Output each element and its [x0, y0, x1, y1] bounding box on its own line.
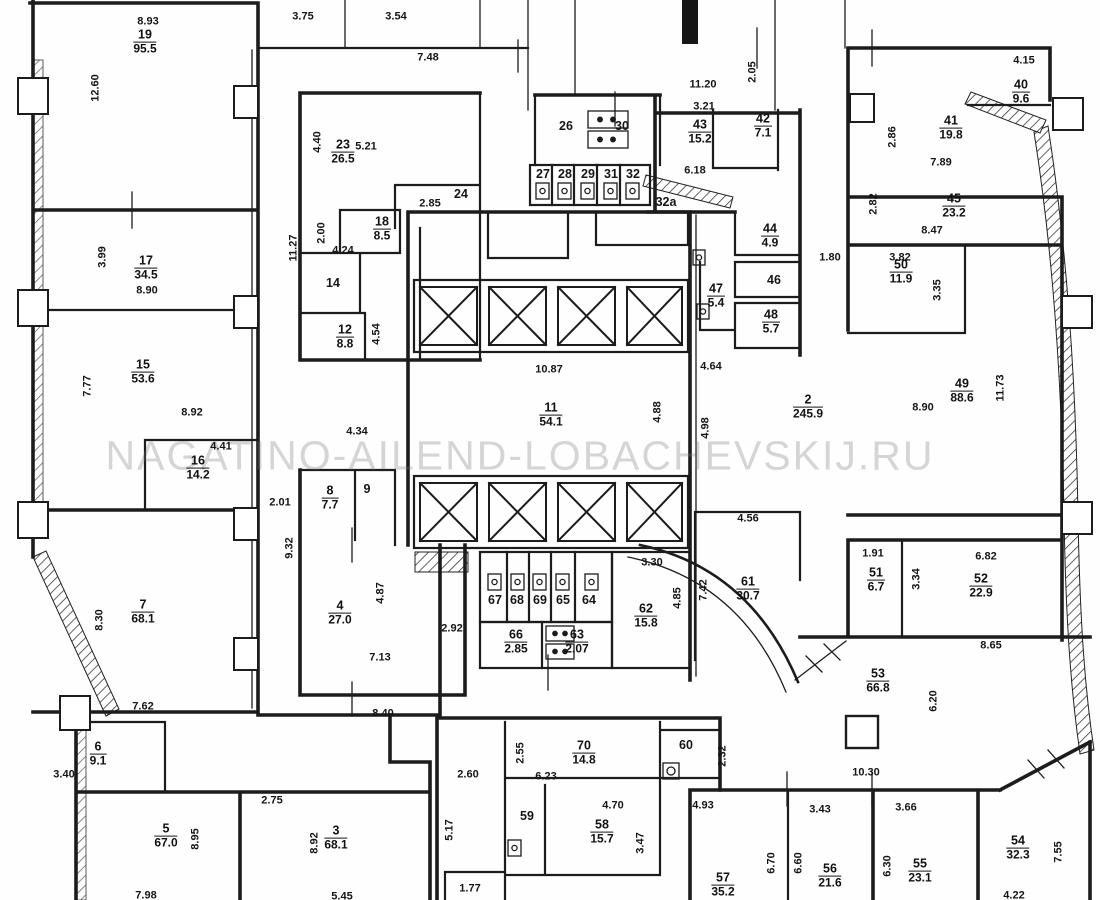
- room-label-5: 567.0: [154, 822, 177, 851]
- dimension-label: 6.82: [975, 552, 996, 563]
- dimension-label: 8.30: [95, 609, 106, 630]
- dimension-label: 4.56: [737, 514, 758, 525]
- room-number: 47: [707, 282, 725, 297]
- dimension-label: 5.21: [355, 142, 376, 153]
- dimension-label: 12.60: [91, 74, 102, 102]
- room-label-41: 4119.8: [939, 114, 962, 143]
- dimension-label: 8.90: [136, 286, 157, 297]
- room-label-47: 475.4: [707, 282, 725, 311]
- dimension-label: 4.64: [700, 362, 721, 373]
- room-number-label: 26: [559, 120, 573, 133]
- dimension-label: 2.75: [261, 796, 282, 807]
- dimension-label: 5.17: [445, 819, 456, 840]
- dimension-label: 5.45: [331, 892, 352, 900]
- room-number-label: 46: [767, 274, 781, 287]
- room-area: 245.9: [793, 408, 823, 422]
- room-number-label: 68: [510, 594, 524, 607]
- room-area: 2.85: [504, 643, 527, 657]
- dimension-label: 8.40: [372, 709, 393, 720]
- room-area: 27.0: [328, 614, 351, 628]
- room-number-label: 64: [582, 594, 596, 607]
- dimension-label: 4.41: [210, 442, 231, 453]
- room-number: 40: [1012, 78, 1030, 93]
- dimension-label: 4.34: [346, 427, 367, 438]
- dimension-label: 3.99: [98, 246, 109, 267]
- room-number: 12: [336, 323, 354, 338]
- dimension-label: 4.15: [1013, 56, 1034, 67]
- room-label-49: 4988.6: [950, 377, 973, 406]
- dimension-label: 7.98: [135, 891, 156, 900]
- room-number-label: 67: [488, 594, 502, 607]
- room-area: 54.1: [539, 416, 562, 430]
- room-area: 7.1: [754, 127, 772, 141]
- dimension-label: 10.87: [535, 365, 563, 376]
- dimension-label: 11.73: [996, 375, 1007, 402]
- room-number: 52: [969, 572, 992, 587]
- room-number-label: 32a: [656, 196, 677, 209]
- room-number: 18: [373, 215, 391, 230]
- dimension-label: 2.01: [269, 498, 290, 509]
- room-label-40: 409.6: [1012, 78, 1030, 107]
- dimension-label: 6.18: [684, 166, 705, 177]
- dimension-label: 3.35: [933, 279, 944, 300]
- room-number: 61: [736, 575, 759, 590]
- dimension-label: 11.20: [690, 80, 717, 91]
- dimension-label: 4.22: [1003, 891, 1024, 900]
- room-number: 54: [1006, 834, 1029, 849]
- room-number: 16: [186, 454, 209, 469]
- room-area: 53.6: [131, 373, 154, 387]
- room-label-63: 632.07: [565, 628, 588, 657]
- dimension-label: 6.70: [767, 852, 778, 873]
- room-area: 11.9: [890, 273, 913, 287]
- dimension-label: 8.93: [137, 17, 158, 28]
- dimension-label: 1.77: [459, 884, 480, 895]
- dimension-label: 3.54: [385, 12, 406, 23]
- dimension-label: 4.93: [692, 801, 713, 812]
- dimension-label: 7.13: [369, 653, 390, 664]
- room-number: 57: [711, 871, 734, 886]
- room-label-18: 188.5: [373, 215, 391, 244]
- room-number-label: 69: [533, 594, 547, 607]
- dimension-label: 9.32: [285, 537, 296, 558]
- room-number: 62: [634, 602, 657, 617]
- room-label-48: 485.7: [762, 308, 780, 337]
- dimension-label: 2.32: [718, 745, 729, 766]
- room-number-label: 65: [556, 594, 570, 607]
- room-label-8: 87.7: [322, 484, 339, 513]
- room-number: 7: [131, 598, 154, 613]
- dimension-label: 4.98: [701, 417, 712, 438]
- room-number: 66: [504, 628, 527, 643]
- room-label-57: 5735.2: [711, 871, 734, 900]
- dimension-label: 4.70: [602, 801, 623, 812]
- room-area: 6.7: [867, 581, 885, 595]
- dimension-label: 3.34: [912, 568, 923, 589]
- dimension-label: 2.05: [748, 61, 759, 82]
- dimension-label: 8.47: [921, 226, 942, 237]
- dimension-label: 3.47: [636, 832, 647, 853]
- room-label-54: 5432.3: [1006, 834, 1029, 863]
- room-area: 14.2: [186, 469, 209, 483]
- room-area: 23.2: [942, 207, 965, 221]
- room-area: 30.7: [736, 590, 759, 604]
- dimension-label: 6.30: [883, 855, 894, 876]
- room-number: 45: [942, 192, 965, 207]
- room-number: 58: [590, 818, 613, 833]
- room-number: 4: [328, 599, 351, 614]
- room-label-2: 2245.9: [793, 393, 823, 422]
- room-area: 5.4: [707, 297, 725, 311]
- room-label-11: 1154.1: [539, 401, 562, 430]
- room-area: 8.8: [336, 338, 354, 352]
- room-area: 68.1: [324, 839, 347, 853]
- dimension-label: 2.85: [419, 199, 440, 210]
- room-label-7: 768.1: [131, 598, 154, 627]
- dimension-label: 2.55: [516, 742, 527, 763]
- room-number: 50: [890, 258, 913, 273]
- room-number: 70: [572, 739, 595, 754]
- room-label-44: 444.9: [761, 222, 779, 251]
- room-number: 44: [761, 222, 779, 237]
- dimension-label: 4.40: [313, 131, 324, 152]
- room-area: 15.2: [688, 133, 711, 147]
- room-area: 4.9: [761, 237, 779, 251]
- room-number: 15: [131, 358, 154, 373]
- room-area: 21.6: [818, 877, 841, 891]
- room-area: 32.3: [1006, 849, 1029, 863]
- dimension-label: 2.00: [317, 222, 328, 243]
- dimension-label: 1.91: [862, 549, 883, 560]
- room-label-70: 7014.8: [572, 739, 595, 768]
- dimension-label: 7.77: [83, 375, 94, 396]
- room-area: 34.5: [134, 269, 157, 283]
- dimension-label: 2.60: [457, 770, 478, 781]
- room-label-53: 5366.8: [866, 667, 889, 696]
- room-area: 35.2: [711, 886, 734, 900]
- room-number: 51: [867, 566, 885, 581]
- room-label-61: 6130.7: [736, 575, 759, 604]
- room-number: 17: [134, 254, 157, 269]
- room-label-56: 5621.6: [818, 862, 841, 891]
- dimension-label: 4.88: [653, 401, 664, 422]
- dimension-label: 2.82: [869, 193, 880, 214]
- room-number-label: 9: [364, 483, 371, 496]
- room-area: 23.1: [908, 872, 931, 886]
- room-number-label: 32: [626, 168, 640, 181]
- room-label-17: 1734.5: [134, 254, 157, 283]
- room-area: 5.7: [762, 323, 780, 337]
- room-number: 56: [818, 862, 841, 877]
- dimension-label: 7.55: [1054, 841, 1065, 862]
- dimension-label: 4.87: [376, 582, 387, 603]
- room-number-label: 28: [558, 168, 572, 181]
- dimension-label: 4.54: [372, 323, 383, 344]
- room-label-66: 662.85: [504, 628, 527, 657]
- room-area: 8.5: [373, 230, 391, 244]
- room-label-15: 1553.6: [131, 358, 154, 387]
- dimension-label: 4.24: [332, 246, 353, 257]
- room-label-55: 5523.1: [908, 857, 931, 886]
- room-number-label: 60: [679, 739, 693, 752]
- room-label-3: 368.1: [324, 824, 347, 853]
- dimension-label: 3.30: [641, 558, 662, 569]
- room-area: 14.8: [572, 754, 595, 768]
- room-area: 19.8: [939, 129, 962, 143]
- room-area: 9.6: [1012, 93, 1030, 107]
- room-number: 23: [331, 138, 354, 153]
- room-label-16: 1614.2: [186, 454, 209, 483]
- room-number: 48: [762, 308, 780, 323]
- room-area: 9.1: [90, 755, 107, 769]
- dimension-label: 3.21: [693, 102, 714, 113]
- dimension-label: 8.92: [181, 408, 202, 419]
- room-label-6: 69.1: [90, 740, 107, 769]
- room-area: 68.1: [131, 613, 154, 627]
- room-label-62: 6215.8: [634, 602, 657, 631]
- room-number-label: 27: [536, 168, 550, 181]
- room-number: 6: [90, 740, 107, 755]
- dimension-label: 2.92: [441, 624, 462, 635]
- room-area: 15.8: [634, 617, 657, 631]
- room-number: 2: [793, 393, 823, 408]
- dimension-label: 10.30: [852, 768, 880, 779]
- room-number: 41: [939, 114, 962, 129]
- room-number-label: 30: [615, 120, 629, 133]
- dimension-label: 1.80: [819, 253, 840, 264]
- room-number: 49: [950, 377, 973, 392]
- dimension-label: 7.89: [930, 158, 951, 169]
- room-area: 67.0: [154, 837, 177, 851]
- room-label-52: 5222.9: [969, 572, 992, 601]
- room-area: 22.9: [969, 587, 992, 601]
- room-label-42: 427.1: [754, 112, 772, 141]
- room-label-50: 5011.9: [890, 258, 913, 287]
- room-label-23: 2326.5: [331, 138, 354, 167]
- dimension-label: 8.92: [310, 832, 321, 853]
- dimension-label: 8.95: [191, 828, 202, 849]
- room-number-label: 14: [326, 277, 340, 290]
- dimension-label: 11.27: [289, 235, 300, 262]
- dimension-label: 3.40: [53, 770, 74, 781]
- room-label-45: 4523.2: [942, 192, 965, 221]
- room-label-58: 5815.7: [590, 818, 613, 847]
- room-number-label: 24: [454, 188, 468, 201]
- dimension-label: 8.90: [912, 403, 933, 414]
- room-number-label: 31: [604, 168, 618, 181]
- room-area: 2.07: [565, 643, 588, 657]
- room-number: 53: [866, 667, 889, 682]
- room-number: 8: [322, 484, 339, 499]
- room-number-label: 59: [520, 810, 534, 823]
- room-number-label: 29: [581, 168, 595, 181]
- room-number: 5: [154, 822, 177, 837]
- room-number: 42: [754, 112, 772, 127]
- dimension-label: 3.75: [292, 12, 313, 23]
- room-number: 43: [688, 118, 711, 133]
- dimension-label: 7.62: [132, 702, 153, 713]
- room-number: 55: [908, 857, 931, 872]
- room-label-4: 427.0: [328, 599, 351, 628]
- labels-layer: 8.9312.603.753.547.4811.202.053.216.1832…: [0, 0, 1100, 900]
- room-number: 63: [565, 628, 588, 643]
- dimension-label: 2.86: [888, 126, 899, 147]
- dimension-label: 3.43: [809, 805, 830, 816]
- room-area: 7.7: [322, 499, 339, 513]
- room-area: 66.8: [866, 682, 889, 696]
- dimension-label: 6.23: [535, 772, 556, 783]
- dimension-label: 6.60: [794, 852, 805, 873]
- room-area: 88.6: [950, 392, 973, 406]
- room-label-12: 128.8: [336, 323, 354, 352]
- dimension-label: 7.42: [699, 579, 710, 600]
- room-label-51: 516.7: [867, 566, 885, 595]
- room-number: 3: [324, 824, 347, 839]
- room-area: 15.7: [590, 833, 613, 847]
- dimension-label: 4.85: [673, 587, 684, 608]
- floor-plan-page: NAGATINO-AILEND-LOBACHEVSKIJ.RU 8.9312.6…: [0, 0, 1100, 900]
- room-number: 11: [539, 401, 562, 416]
- room-label-43: 4315.2: [688, 118, 711, 147]
- dimension-label: 7.48: [417, 53, 438, 64]
- dimension-label: 3.66: [895, 803, 916, 814]
- room-area: 26.5: [331, 153, 354, 167]
- room-number: 19: [133, 28, 156, 43]
- room-area: 95.5: [133, 43, 156, 57]
- room-label-19: 1995.5: [133, 28, 156, 57]
- dimension-label: 8.65: [980, 641, 1001, 652]
- dimension-label: 6.20: [929, 690, 940, 711]
